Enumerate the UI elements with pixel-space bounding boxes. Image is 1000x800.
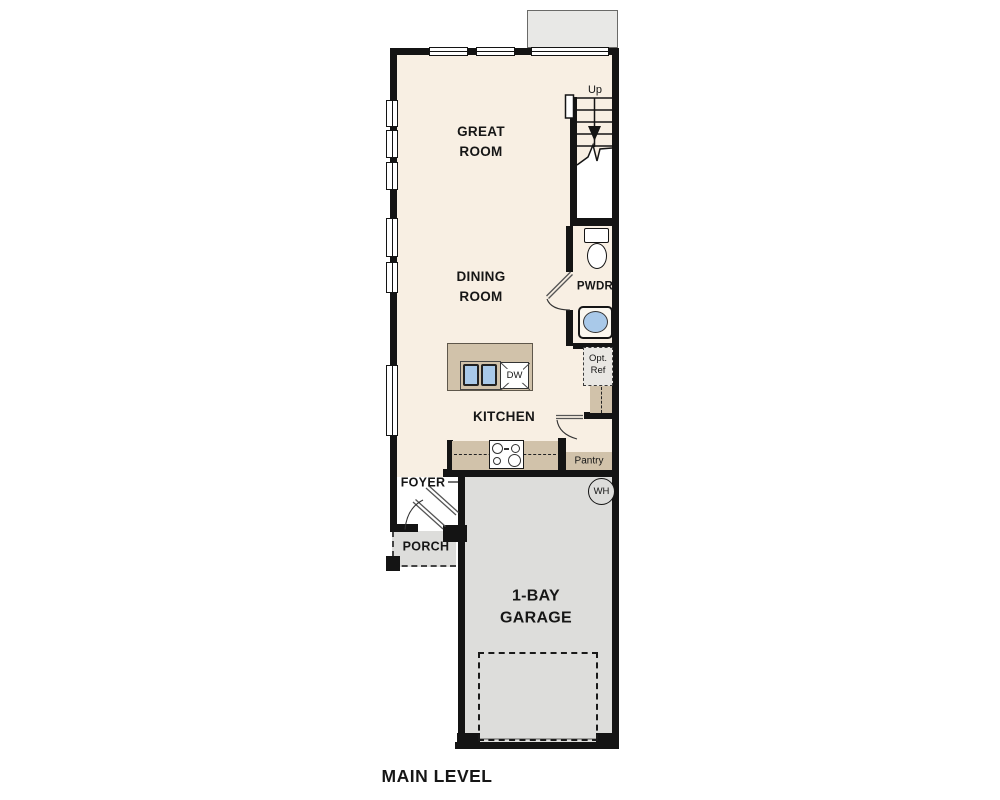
wall-stair-left [570,97,577,225]
window [429,47,468,56]
burner [511,444,520,453]
wall-kitchen-garage [443,469,619,477]
powder-sink [583,311,608,333]
wall-pantry-stub [558,438,566,470]
wall-right [612,48,619,749]
range [489,440,524,469]
burner [508,454,521,467]
patio-slider-door [531,47,609,56]
burner [493,457,501,465]
garage-door-dashed [478,652,598,741]
wall-powder-left-upper [566,226,573,272]
burner-dash [504,448,509,450]
pantry-label: Pantry [575,454,604,469]
porch-post [386,556,400,571]
toilet-bowl [587,243,607,269]
water-heater-label: WH [594,485,610,499]
wall-garage-corner-right [596,733,619,749]
window [476,47,515,56]
garage-label: 1-BAY GARAGE [500,586,572,631]
floor-plan: DW WH [0,0,1000,800]
wall-foyer-bottom-left [390,524,418,532]
stairs-up-label: Up [588,82,602,99]
wall-powder-left-lower [566,310,573,346]
wall-garage-corner-left [457,733,480,749]
island-sink-basin [463,364,479,386]
great-room-label: GREAT ROOM [457,122,505,163]
wall-garage-left [458,476,465,749]
foyer-label: FOYER [401,474,446,493]
window [386,365,398,436]
powder-label: PWDR [577,278,613,295]
island-sink-basin [481,364,497,386]
rear-patio [527,10,618,48]
window [386,262,398,293]
water-heater: WH [588,478,615,505]
window [386,218,398,257]
plan-title: MAIN LEVEL [382,763,493,789]
window [386,100,398,127]
kitchen-label: KITCHEN [473,407,535,427]
burner [492,443,503,454]
wall-pantry-top [584,412,619,419]
toilet-tank [584,228,609,243]
porch-label: PORCH [403,538,450,557]
window [386,130,398,158]
cabinet-centerline [601,387,602,413]
window [386,162,398,190]
dining-room-label: DINING ROOM [456,267,505,308]
dishwasher: DW [500,362,529,389]
opt-ref-label: Opt. Ref [589,353,607,377]
wall-stair-bottom [570,218,619,226]
dishwasher-label: DW [506,369,524,383]
